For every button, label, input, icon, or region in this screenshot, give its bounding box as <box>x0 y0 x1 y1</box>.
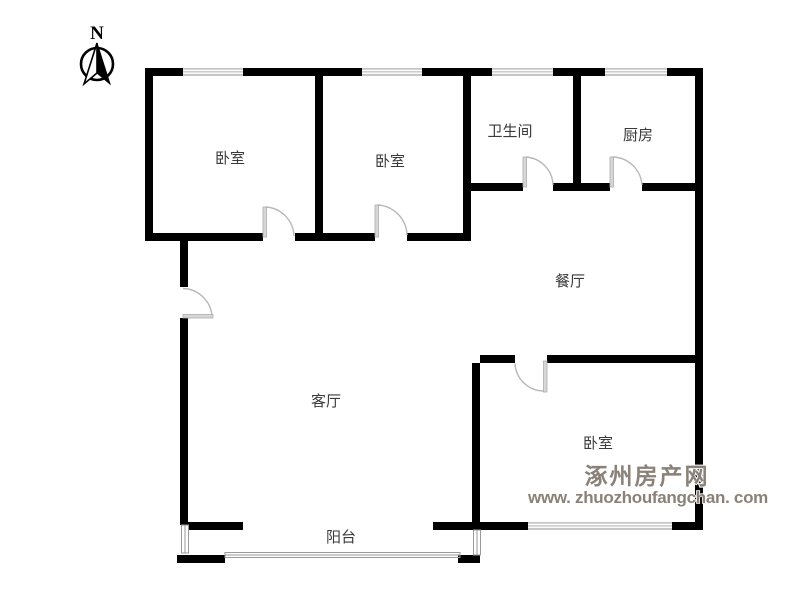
label-balcony: 阳台 <box>326 529 356 546</box>
watermark: 涿州房产网 www. zhuozhoufangchan. com <box>527 463 768 507</box>
door-kitchen <box>610 157 642 187</box>
wall-bathroom-bottom-seg1 <box>463 183 523 191</box>
wall-bedroom3-bottom-seg2 <box>672 522 703 530</box>
wall-bedroom3-top-seg2 <box>547 355 695 363</box>
label-bedroom-top-middle: 卧室 <box>375 153 405 170</box>
wall-bedrooms-bottom-seg3 <box>407 233 471 241</box>
wall-bathroom-kitchen-divider <box>573 76 581 191</box>
wall-living-balcony-left <box>188 522 243 530</box>
wall-living-left-seg2 <box>180 318 188 525</box>
door-entrance <box>183 289 213 319</box>
window-bedroom3-bottom <box>528 522 672 530</box>
watermark-site-url: www. zhuozhoufangchan. com <box>527 488 768 507</box>
wall-bedrooms-bottom-seg2 <box>295 233 375 241</box>
window-bedroom2-top <box>362 68 422 76</box>
wall-bedroom2-right <box>463 76 471 241</box>
wall-bedroom3-left <box>472 363 480 530</box>
compass-n-label: N <box>90 23 104 44</box>
wall-balcony-corner-right <box>458 555 480 563</box>
wall-bedroom1-bedroom2-divider <box>315 76 323 241</box>
window-kitchen-top <box>605 68 667 76</box>
wall-kitchen-bottom-seg3 <box>642 183 703 191</box>
wall-balcony-corner-left <box>177 555 225 563</box>
balcony-railing <box>225 553 460 558</box>
door-bedroom1 <box>263 207 294 237</box>
wall-bedroom3-top-seg1 <box>480 355 515 363</box>
wall-bathroom-kitchen-bottom-seg2 <box>553 183 610 191</box>
label-dining-room: 餐厅 <box>555 273 585 290</box>
watermark-site-name: 涿州房产网 <box>585 463 710 489</box>
label-living-room: 客厅 <box>311 393 341 410</box>
window-bathroom-top <box>492 68 553 76</box>
door-bedroom2 <box>375 205 407 237</box>
label-bedroom-bottom-right: 卧室 <box>583 435 613 452</box>
wall-bedroom3-bottom-seg1 <box>480 522 528 530</box>
wall-bedrooms-bottom-seg1 <box>145 233 263 241</box>
wall-outer-left-upper <box>145 68 153 241</box>
label-bathroom: 卫生间 <box>487 123 532 140</box>
label-bedroom-top-left: 卧室 <box>215 150 245 167</box>
window-balcony-right <box>474 530 481 555</box>
label-kitchen: 厨房 <box>623 127 653 144</box>
north-compass: N <box>81 23 113 84</box>
wall-outer-right <box>695 68 703 530</box>
window-balcony-left <box>182 525 189 553</box>
window-bedroom1-top <box>183 68 243 76</box>
floor-plan: N 卧室 卧室 卫生间 厨房 餐厅 客厅 卧室 阳台 涿州房产网 www. zh… <box>0 0 800 600</box>
door-bathroom <box>523 157 553 187</box>
wall-living-left-seg1 <box>180 233 188 287</box>
door-bedroom3 <box>515 361 547 392</box>
